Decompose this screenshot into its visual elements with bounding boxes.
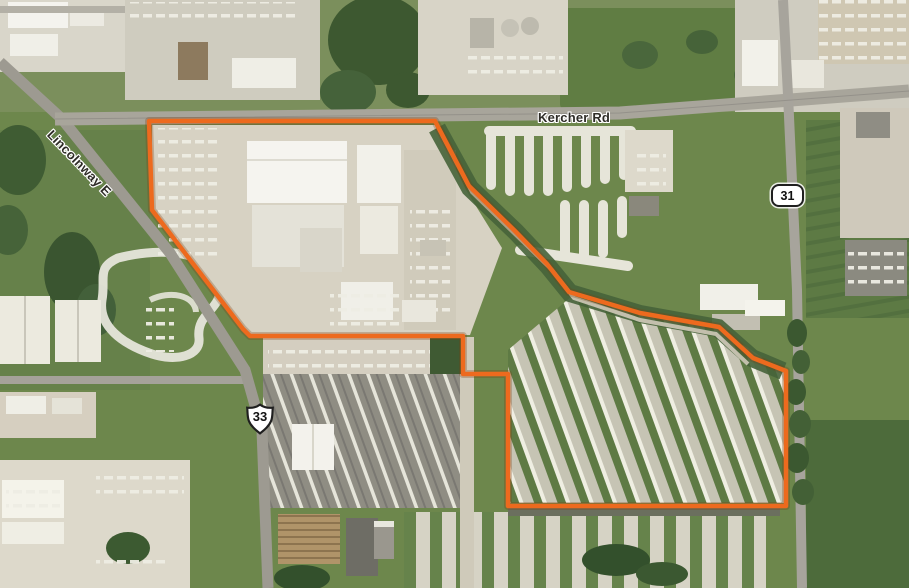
- southwest-rv-lot: [263, 335, 462, 508]
- state-route-31-shield: 31: [771, 184, 804, 207]
- satellite-imagery: [0, 0, 909, 588]
- route-33-number: 33: [245, 409, 275, 424]
- route-31-number: 31: [781, 189, 795, 203]
- aerial-map[interactable]: Kercher Rd Lincolnway E 31 33: [0, 0, 909, 588]
- road-label-kercher-rd: Kercher Rd: [538, 110, 610, 125]
- us-route-33-shield: 33: [245, 403, 275, 435]
